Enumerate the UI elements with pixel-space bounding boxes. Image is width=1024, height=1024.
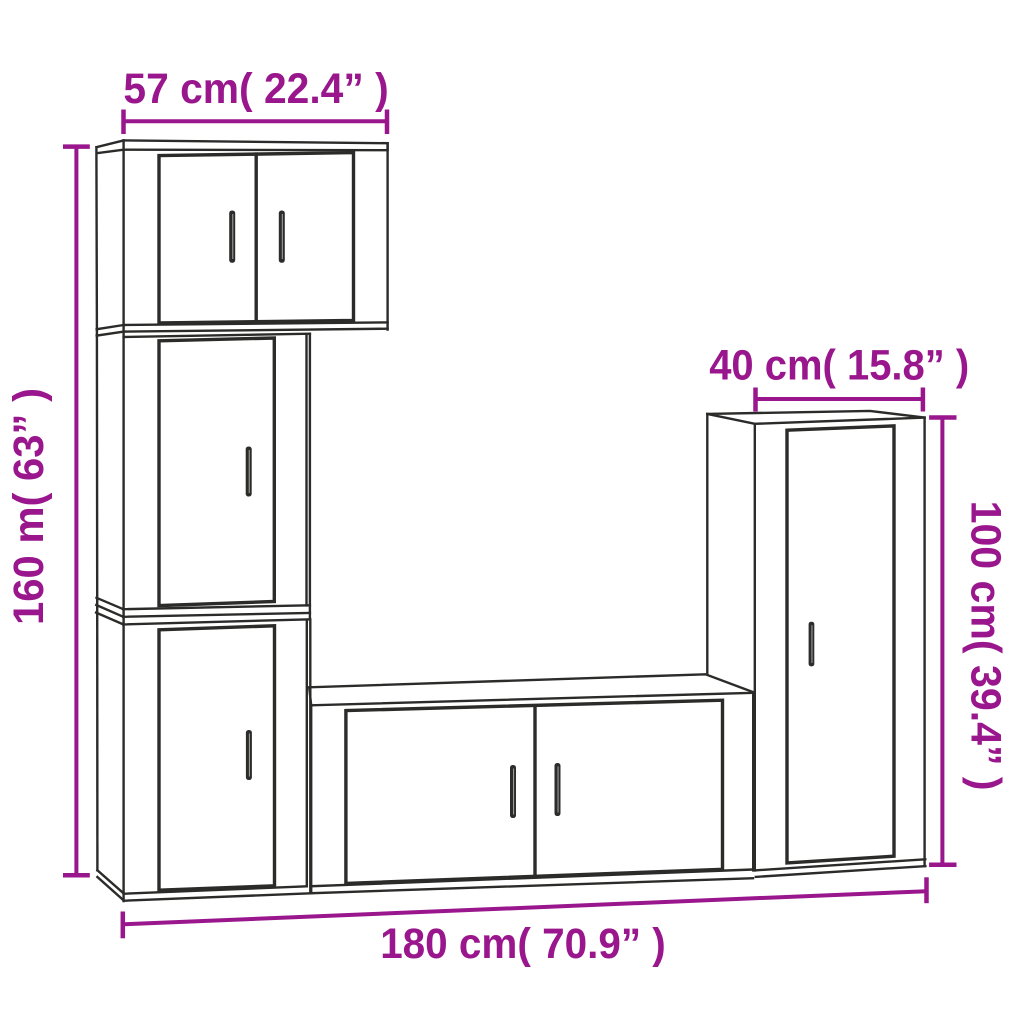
svg-text:57 cm( 22.4” ): 57 cm( 22.4” ) [123,65,388,113]
svg-text:180 cm( 70.9” ): 180 cm( 70.9” ) [380,920,666,968]
svg-text:100 cm( 39.4” ): 100 cm( 39.4” ) [962,501,1010,791]
svg-text:40 cm( 15.8” ): 40 cm( 15.8” ) [709,342,969,390]
svg-text:160 m( 63” ): 160 m( 63” ) [5,388,53,625]
